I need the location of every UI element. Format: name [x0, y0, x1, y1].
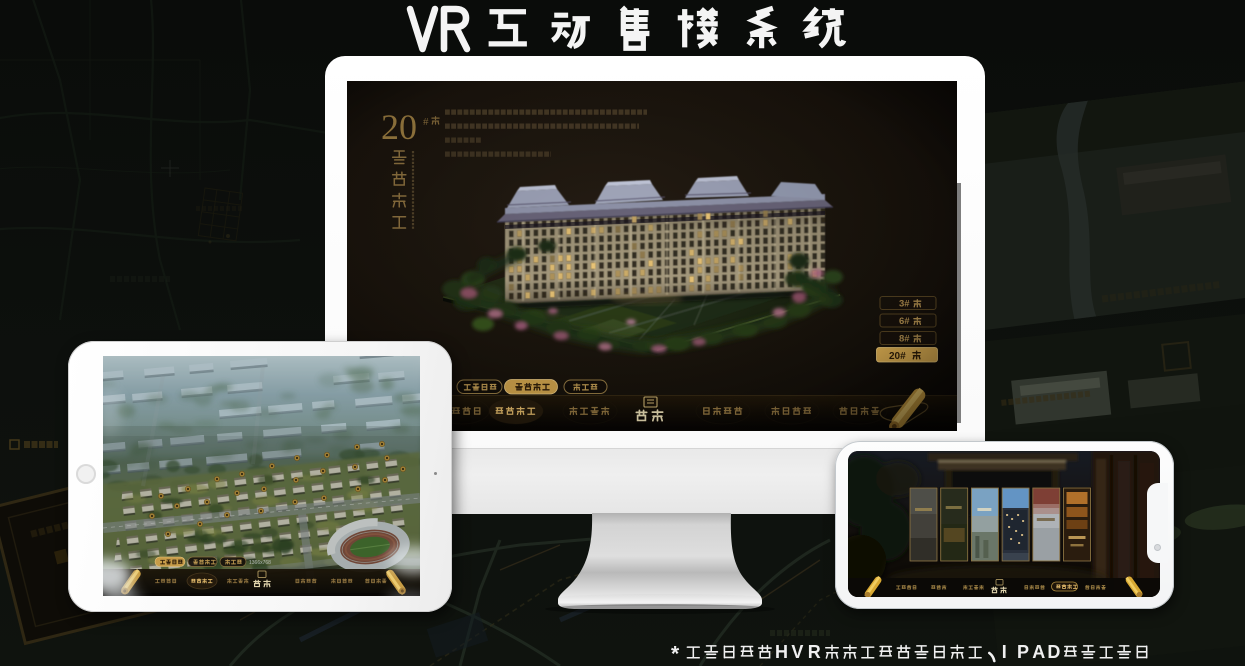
svg-text:V: V — [791, 642, 803, 662]
svg-text:A: A — [1032, 642, 1045, 662]
svg-text:*: * — [671, 643, 680, 666]
svg-text:H: H — [775, 642, 788, 662]
svg-text:R: R — [808, 642, 821, 662]
svg-text:P: P — [1017, 642, 1029, 662]
svg-text:I: I — [1002, 642, 1007, 662]
svg-text:D: D — [1047, 642, 1060, 662]
